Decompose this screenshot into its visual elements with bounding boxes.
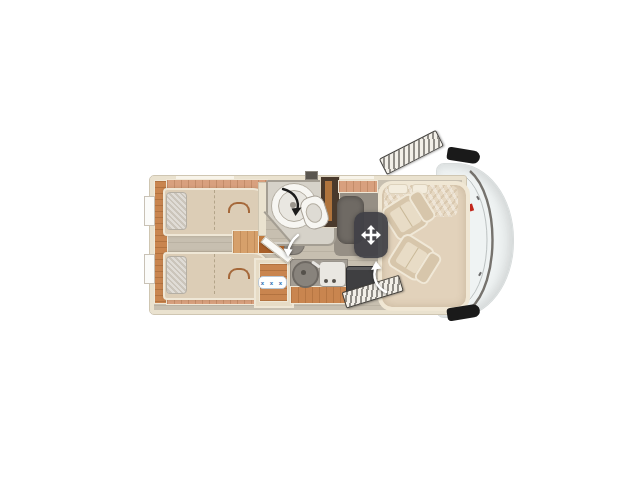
pillow-bottom [166,256,187,294]
bed-handle-top [228,202,250,213]
move-icon [359,223,383,247]
side-mirror-top-icon [446,146,481,164]
mid-console [232,230,260,254]
bed-handle-bottom [228,268,250,279]
hob-burner-symbols: x x x [261,280,284,286]
stove [319,261,346,287]
floorplan-canvas: x x x [0,0,640,480]
bed-seam-bottom [214,254,215,294]
head-pillow [388,184,408,194]
rear-locker-door-bottom [144,254,155,284]
door-swing-arrow-icon [278,232,304,260]
window-top-mid [340,176,374,179]
move-floorplan-button[interactable] [354,212,388,258]
seat-swivel-arrow-icon [368,258,394,296]
cab-door-open [379,130,444,175]
stove-knob [324,279,328,283]
hob-control-panel: x x x [258,276,287,289]
rear-locker-door-top [144,196,155,226]
overhead-shelf-front [338,180,378,193]
pillow-top [166,192,187,230]
shower-swivel-arrow-icon [276,186,306,220]
bed-seam-top [214,190,215,230]
roof-vent [305,171,318,180]
kitchen-drawers [290,286,348,304]
stove-knob [332,279,336,283]
sink-drain [301,270,306,275]
